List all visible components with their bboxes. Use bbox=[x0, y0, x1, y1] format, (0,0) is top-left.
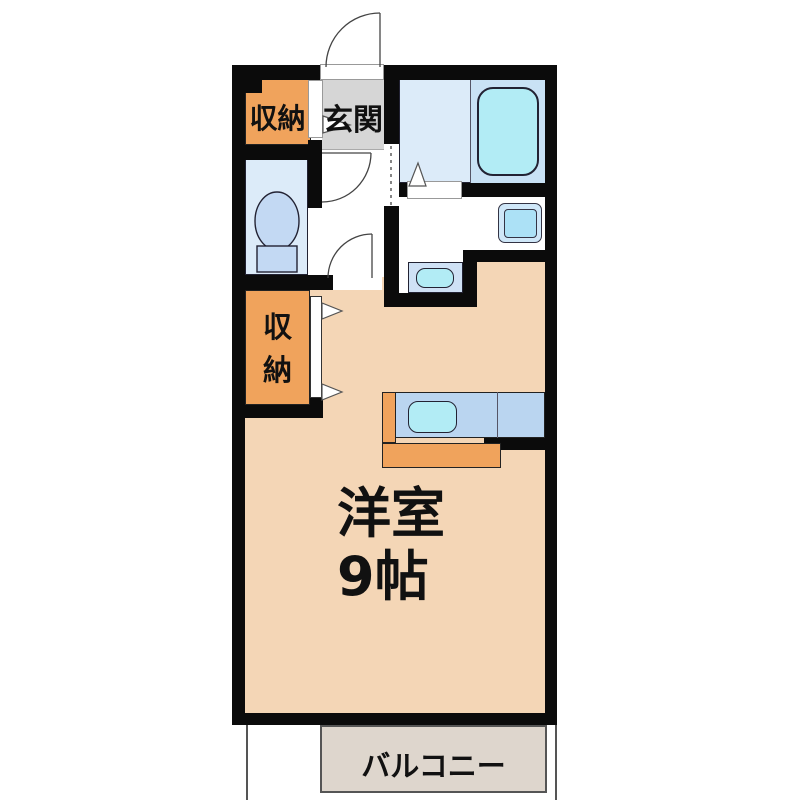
storage-mid-label-line2: 納 bbox=[245, 349, 310, 392]
hallway-floor bbox=[322, 150, 384, 277]
entrance-threshold bbox=[320, 64, 384, 80]
kitchen-counter-left bbox=[382, 392, 396, 443]
wall-entrance-bath bbox=[384, 65, 399, 144]
washing-machine bbox=[504, 209, 537, 238]
main-room-label-line2: 9帖 bbox=[337, 545, 467, 608]
floor-plan: 収納 玄関 収 納 洋室 9帖 バルコニー bbox=[0, 0, 790, 800]
outer-wall-bottom bbox=[232, 713, 557, 725]
toilet-doorway bbox=[308, 208, 322, 275]
kitchen-counter-bottom bbox=[382, 443, 501, 468]
toilet-room bbox=[245, 158, 308, 275]
storage-mid-label: 収 納 bbox=[245, 306, 310, 392]
main-room-label-line1: 洋室 bbox=[337, 482, 467, 545]
wall-under-toilet bbox=[232, 275, 333, 290]
storage-mid-corner-stub bbox=[310, 396, 323, 418]
main-room-label: 洋室 9帖 bbox=[337, 482, 467, 608]
wall-mid-vertical bbox=[384, 206, 399, 307]
closet-door bbox=[310, 296, 322, 398]
bathtub bbox=[477, 87, 539, 176]
hall-doorway bbox=[333, 277, 382, 290]
entrance-label: 玄関 bbox=[322, 95, 384, 139]
kitchen-sink bbox=[408, 401, 457, 433]
hall-left-wall bbox=[308, 140, 322, 208]
entrance-door-arc bbox=[326, 13, 380, 67]
wall-under-washroom bbox=[463, 250, 545, 262]
balcony-label: バルコニー bbox=[320, 743, 547, 785]
balcony-side-line-left bbox=[246, 725, 248, 800]
storage-mid-label-line1: 収 bbox=[245, 306, 310, 349]
wash-basin bbox=[416, 268, 454, 288]
balcony-side-line-right bbox=[555, 725, 557, 800]
outer-wall-right bbox=[545, 65, 557, 725]
storage-top-label: 収納 bbox=[244, 97, 311, 137]
washroom-open-divider bbox=[384, 144, 399, 206]
outer-wall-left bbox=[232, 65, 245, 725]
bathroom-door bbox=[407, 181, 462, 199]
kitchen-counter-divider bbox=[497, 392, 498, 438]
storage-top-notch-wall bbox=[245, 78, 262, 93]
